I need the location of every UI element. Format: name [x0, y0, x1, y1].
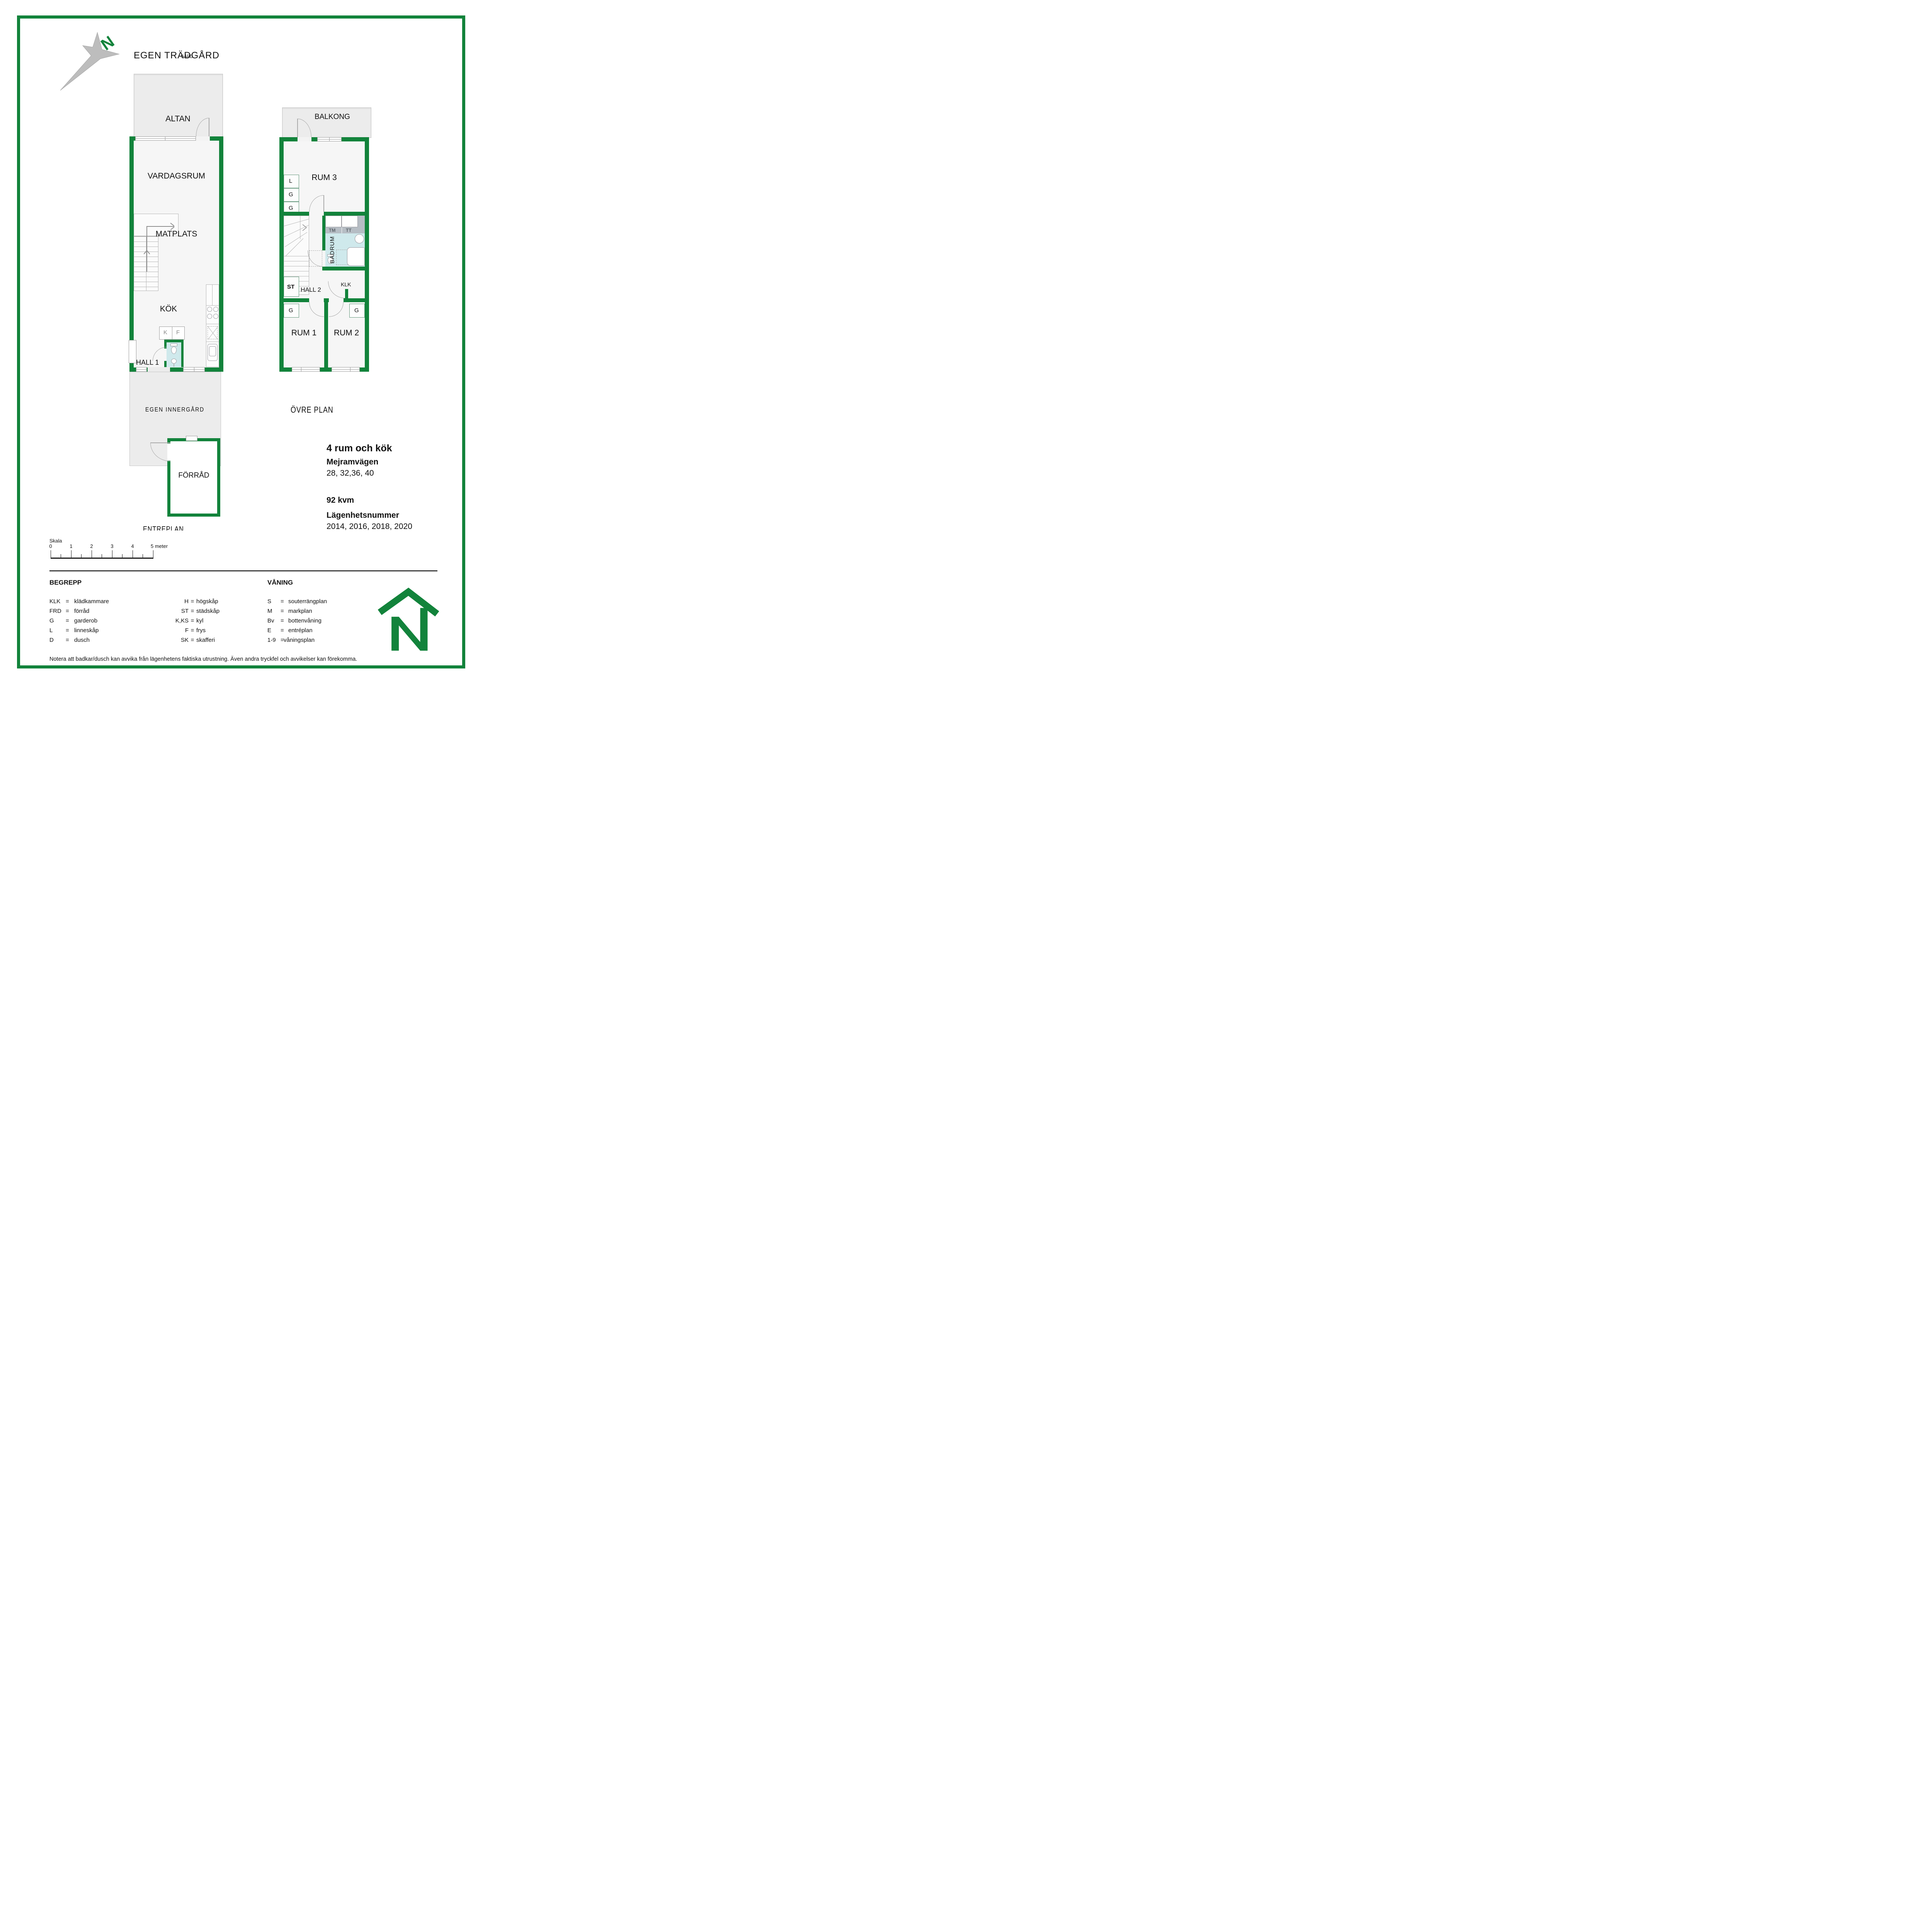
legend-abbr: FRD	[49, 608, 66, 614]
floors-term: bottenvåning	[288, 617, 321, 624]
scale-number: 1	[67, 543, 75, 549]
legend-abbr: D	[49, 637, 66, 643]
floors-abbr: Bv	[267, 617, 281, 624]
legend-eq: =	[189, 598, 196, 605]
floors-term: markplan	[288, 608, 312, 614]
g-label: G	[354, 307, 359, 314]
badrum-wall-bottom	[322, 267, 365, 270]
shaft-box	[358, 216, 365, 233]
window-line	[135, 138, 196, 139]
floors-legend-row: 1-9=våningsplan	[267, 637, 315, 643]
legend-row: K,KS=kyl	[162, 617, 203, 624]
scale-tick-major	[153, 550, 153, 559]
entrance-opening	[148, 367, 170, 372]
door-opening	[298, 137, 311, 141]
scale-label: Skala	[49, 538, 62, 544]
info-street-numbers: 28, 32,36, 40	[327, 469, 374, 478]
compass-icon: N	[57, 32, 131, 94]
legend-abbr: ST	[162, 608, 189, 614]
info-area: 92 kvm	[327, 496, 354, 505]
matplats-label: MATPLATS	[134, 230, 219, 239]
balkong-deck	[282, 107, 371, 138]
scale-tick-major	[51, 550, 51, 559]
wall-segment	[324, 298, 329, 302]
hall-niche	[129, 340, 136, 363]
wc-sink-stem	[173, 363, 174, 367]
balkong-label: BALKONG	[294, 113, 371, 121]
floor1-caption-clip: ENTREPLAN	[143, 526, 197, 531]
kyl-label: K	[163, 329, 167, 336]
scale-tick-major	[112, 550, 112, 559]
dryer-box	[342, 216, 358, 227]
legend-row: SK=skafferi	[162, 637, 215, 643]
floors-eq: =	[281, 608, 288, 614]
scale-tick-major	[92, 550, 92, 559]
tt-label: TT	[346, 228, 352, 233]
logo-roof	[380, 592, 437, 614]
vardagsrum-label: VARDAGSRUM	[134, 172, 219, 181]
cabinet-x-lines	[208, 327, 218, 340]
scale-end-label: 5 meter	[151, 543, 168, 549]
stove-burner	[207, 314, 212, 319]
floors-eq: =	[281, 598, 288, 605]
forrad-window	[186, 436, 197, 441]
closet-g-label: G	[289, 191, 293, 198]
floors-term: entréplan	[288, 627, 313, 634]
floorplan-page: N EGEN TRÄDGÅRD GÅRD ALTAN VARDAGSRUM MA…	[0, 0, 479, 678]
wc-wall-top	[164, 340, 184, 342]
legend-eq: =	[66, 617, 74, 624]
legend-abbr: KLK	[49, 598, 66, 605]
window-mullion	[329, 137, 330, 141]
hall2-label: HALL 2	[301, 287, 321, 294]
bathtub	[347, 247, 365, 266]
scale-tick-minor	[122, 554, 122, 559]
wc-wall-right	[181, 342, 184, 367]
g-label: G	[289, 307, 293, 314]
floors-abbr: S	[267, 598, 281, 605]
klk-label: KLK	[341, 281, 351, 287]
scale-number: 4	[129, 543, 136, 549]
floor2-caption: ÖVRE PLAN	[291, 405, 333, 415]
counter-line	[206, 305, 219, 306]
wall-segment	[284, 298, 309, 302]
legend-row: ST=städskåp	[162, 608, 219, 614]
floors-legend-row: E=entréplan	[267, 627, 313, 634]
legend-term: frys	[196, 627, 206, 634]
floors-legend-title: VÅNING	[267, 579, 293, 587]
frys-label: F	[176, 329, 180, 336]
kitchen-sink-bowl	[209, 346, 216, 356]
wall-segment	[344, 298, 365, 302]
window-line	[292, 369, 320, 370]
floors-eq: =	[281, 637, 284, 643]
toilet-tank	[170, 344, 177, 346]
section-divider-line	[49, 570, 437, 571]
legend-row: FRD=förråd	[49, 608, 89, 614]
info-apartment-label: Lägenhetsnummer	[327, 511, 399, 520]
garden-title: EGEN TRÄDGÅRD	[134, 50, 219, 61]
legend-row: KLK=klädkammare	[49, 598, 109, 605]
rum1-label: RUM 1	[284, 328, 324, 338]
forrad-label: FÖRRÅD	[167, 471, 220, 480]
legend-row: G=garderob	[49, 617, 97, 624]
legend-eq: =	[66, 637, 74, 643]
badrum-wall-left	[322, 216, 325, 250]
scale-tick-major	[71, 550, 71, 559]
legend-eq: =	[189, 627, 196, 634]
window-mullion	[165, 136, 165, 141]
bathroom-sink	[355, 234, 364, 243]
innergard-label: EGEN INNERGÅRD	[135, 406, 215, 413]
legend-term: klädkammare	[74, 598, 109, 605]
legend-row: H=högskåp	[162, 598, 218, 605]
stove-burner	[207, 307, 212, 312]
stairs-arrow-run	[146, 226, 174, 227]
tm-tt-divider	[342, 227, 342, 233]
footnote: Notera att badkar/dusch kan avvika från …	[49, 656, 357, 662]
floors-abbr: E	[267, 627, 281, 634]
legend-term: förråd	[74, 608, 89, 614]
legend-row: L=linneskåp	[49, 627, 99, 634]
counter-divider	[212, 284, 213, 305]
legend-abbr: L	[49, 627, 66, 634]
scale-tick-minor	[61, 554, 61, 559]
legend-abbr: G	[49, 617, 66, 624]
window-mullion	[350, 367, 350, 372]
badrum-label: BADRUM	[329, 215, 336, 285]
scale-tick-minor	[102, 554, 102, 559]
floors-term: souterrängplan	[288, 598, 327, 605]
info-street: Mejramvägen	[327, 457, 378, 467]
legend-eq: =	[66, 608, 74, 614]
scale-number: 3	[108, 543, 116, 549]
legend-row: D=dusch	[49, 637, 90, 643]
floors-eq: =	[281, 627, 288, 634]
legend-row: F=frys	[162, 627, 206, 634]
scale-tick-minor	[143, 554, 143, 559]
altan-deck	[134, 74, 223, 137]
legend-abbr: K,KS	[162, 617, 189, 624]
st-label: ST	[287, 284, 294, 290]
floors-legend-row: Bv=bottenvåning	[267, 617, 321, 624]
wc-wall-left	[164, 361, 167, 367]
legend-abbr: SK	[162, 637, 189, 643]
window-mullion	[194, 367, 194, 372]
info-title: 4 rum och kök	[327, 443, 392, 454]
legend-term: skafferi	[196, 637, 215, 643]
floors-term: våningsplan	[284, 637, 315, 643]
legend-term: städskåp	[196, 608, 219, 614]
window-line	[136, 369, 147, 370]
scale-tick-major	[133, 550, 133, 559]
counter-line	[206, 324, 219, 324]
kok-label: KÖK	[134, 304, 203, 314]
kf-divider	[172, 327, 172, 340]
floors-abbr: M	[267, 608, 281, 614]
artifact-label: GÅRD	[181, 54, 193, 59]
scale-number: 0	[47, 543, 54, 549]
legend-eq: =	[66, 627, 74, 634]
window-line	[332, 369, 360, 370]
door-opening	[196, 136, 210, 141]
legend-abbr: F	[162, 627, 189, 634]
scale-tick-minor	[81, 554, 82, 559]
legend-eq: =	[189, 617, 196, 624]
stove-burner	[213, 307, 218, 312]
floors-abbr: 1-9	[267, 637, 281, 643]
legend-title: BEGREPP	[49, 579, 82, 587]
closet-l-label: L	[289, 178, 292, 184]
legend-eq: =	[189, 637, 196, 643]
legend-term: dusch	[74, 637, 90, 643]
rum2-label: RUM 2	[328, 328, 365, 338]
legend-term: högskåp	[196, 598, 218, 605]
closet-g-label: G	[289, 205, 293, 211]
legend-eq: =	[66, 598, 74, 605]
legend-eq: =	[189, 608, 196, 614]
legend-term: garderob	[74, 617, 97, 624]
notar-house-logo	[377, 584, 439, 653]
scale-bar	[51, 558, 153, 559]
rooms-divider-wall	[324, 302, 328, 372]
info-apartment-numbers: 2014, 2016, 2018, 2020	[327, 522, 412, 531]
window-mullion	[301, 367, 301, 372]
counter-line	[206, 342, 219, 342]
stove-burner	[213, 314, 218, 319]
hall1-label: HALL 1	[136, 359, 159, 367]
legend-term: linneskåp	[74, 627, 99, 634]
floor1-caption: ENTREPLAN	[143, 526, 184, 531]
legend-term: kyl	[196, 617, 203, 624]
scale-number: 2	[88, 543, 95, 549]
cabinet-dashed	[208, 326, 218, 339]
wall-segment	[284, 212, 309, 216]
floors-legend-row: S=souterrängplan	[267, 598, 327, 605]
floors-eq: =	[281, 617, 288, 624]
legend-abbr: H	[162, 598, 189, 605]
floors-legend-row: M=markplan	[267, 608, 312, 614]
